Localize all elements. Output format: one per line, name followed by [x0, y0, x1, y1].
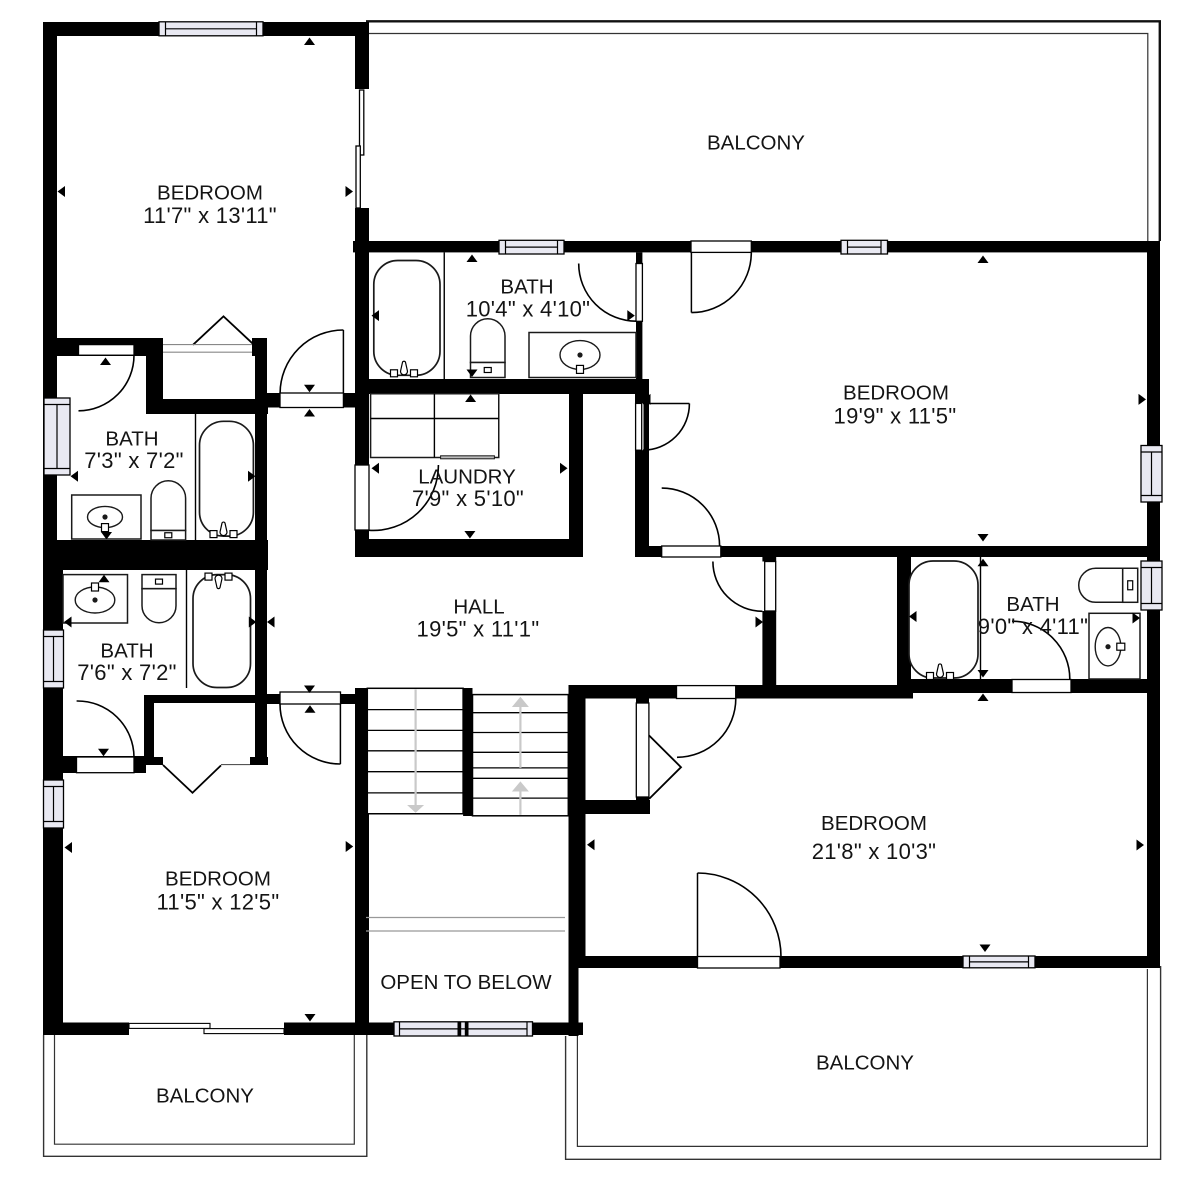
svg-text:BEDROOM: BEDROOM — [157, 181, 263, 204]
svg-text:BALCONY: BALCONY — [156, 1084, 254, 1107]
svg-text:10'4" x 4'10": 10'4" x 4'10" — [466, 296, 591, 321]
svg-text:BALCONY: BALCONY — [816, 1051, 914, 1074]
svg-text:7'3" x 7'2": 7'3" x 7'2" — [84, 448, 184, 473]
svg-text:11'7" x 13'11": 11'7" x 13'11" — [143, 203, 277, 228]
svg-text:BATH: BATH — [500, 275, 553, 298]
svg-text:19'5" x 11'1": 19'5" x 11'1" — [417, 616, 540, 641]
svg-text:11'5" x 12'5": 11'5" x 12'5" — [157, 889, 280, 914]
svg-text:19'9" x 11'5": 19'9" x 11'5" — [834, 403, 957, 428]
svg-text:BEDROOM: BEDROOM — [165, 867, 271, 890]
svg-text:BEDROOM: BEDROOM — [843, 381, 949, 404]
svg-text:OPEN TO BELOW: OPEN TO BELOW — [380, 971, 552, 994]
svg-text:HALL: HALL — [453, 595, 504, 618]
svg-text:7'6" x 7'2": 7'6" x 7'2" — [77, 660, 177, 685]
svg-text:BALCONY: BALCONY — [707, 131, 805, 154]
svg-text:BEDROOM: BEDROOM — [821, 812, 927, 835]
svg-text:7'9" x 5'10": 7'9" x 5'10" — [412, 486, 524, 511]
svg-text:9'0" x 4'11": 9'0" x 4'11" — [978, 614, 1088, 639]
svg-text:21'8" x 10'3": 21'8" x 10'3" — [812, 839, 937, 864]
svg-text:BATH: BATH — [1006, 593, 1059, 616]
